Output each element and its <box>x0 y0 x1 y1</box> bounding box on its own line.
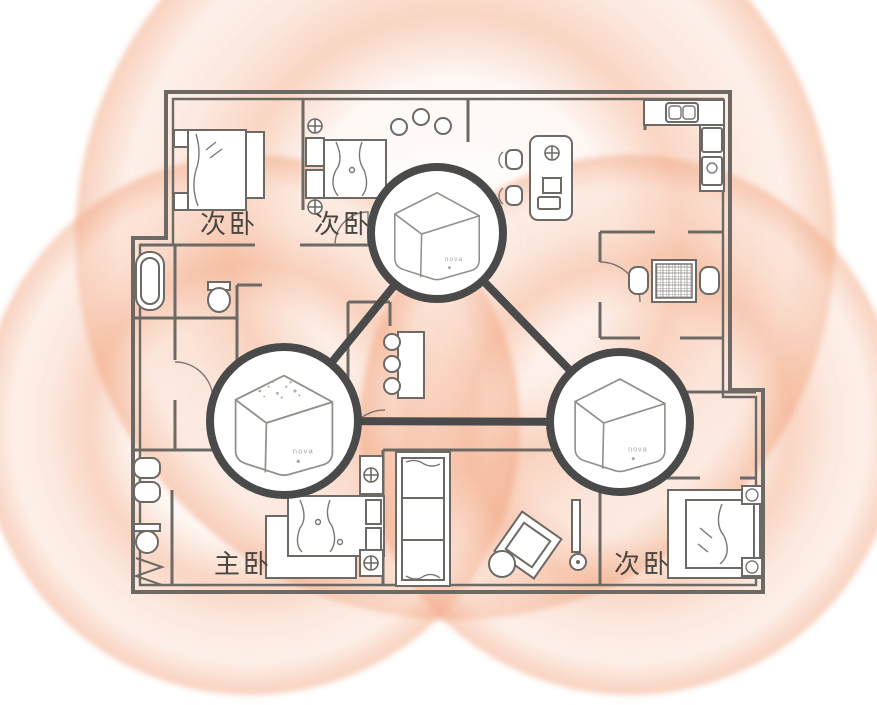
nova-node-bottom-right: nova <box>550 352 690 492</box>
mesh-coverage-diagram: 次卧 次卧 主卧 次卧 nova <box>0 0 877 705</box>
nova-logo-top: nova <box>445 256 463 263</box>
living-room <box>396 452 586 586</box>
room-label-bedroom-master: 主卧 <box>214 549 272 579</box>
room-label-bedroom-top-left: 次卧 <box>200 209 258 239</box>
nova-node-top: nova <box>371 167 503 299</box>
study-table <box>629 260 719 302</box>
nova-node-bottom-left: nova <box>210 347 358 495</box>
kitchen-counter <box>644 100 724 191</box>
floor-plan: 次卧 次卧 主卧 次卧 nova <box>0 0 877 705</box>
bed-top-middle <box>306 119 386 214</box>
nova-logo-bottom-left: nova <box>293 447 314 456</box>
room-label-bedroom-bottom-right: 次卧 <box>614 549 672 579</box>
bed-top-left <box>174 130 264 210</box>
bed-bottom-right <box>668 486 762 578</box>
bar-counter <box>384 332 424 398</box>
room-label-bedroom-top-middle: 次卧 <box>314 209 372 239</box>
nova-logo-bottom-right: nova <box>628 446 648 454</box>
